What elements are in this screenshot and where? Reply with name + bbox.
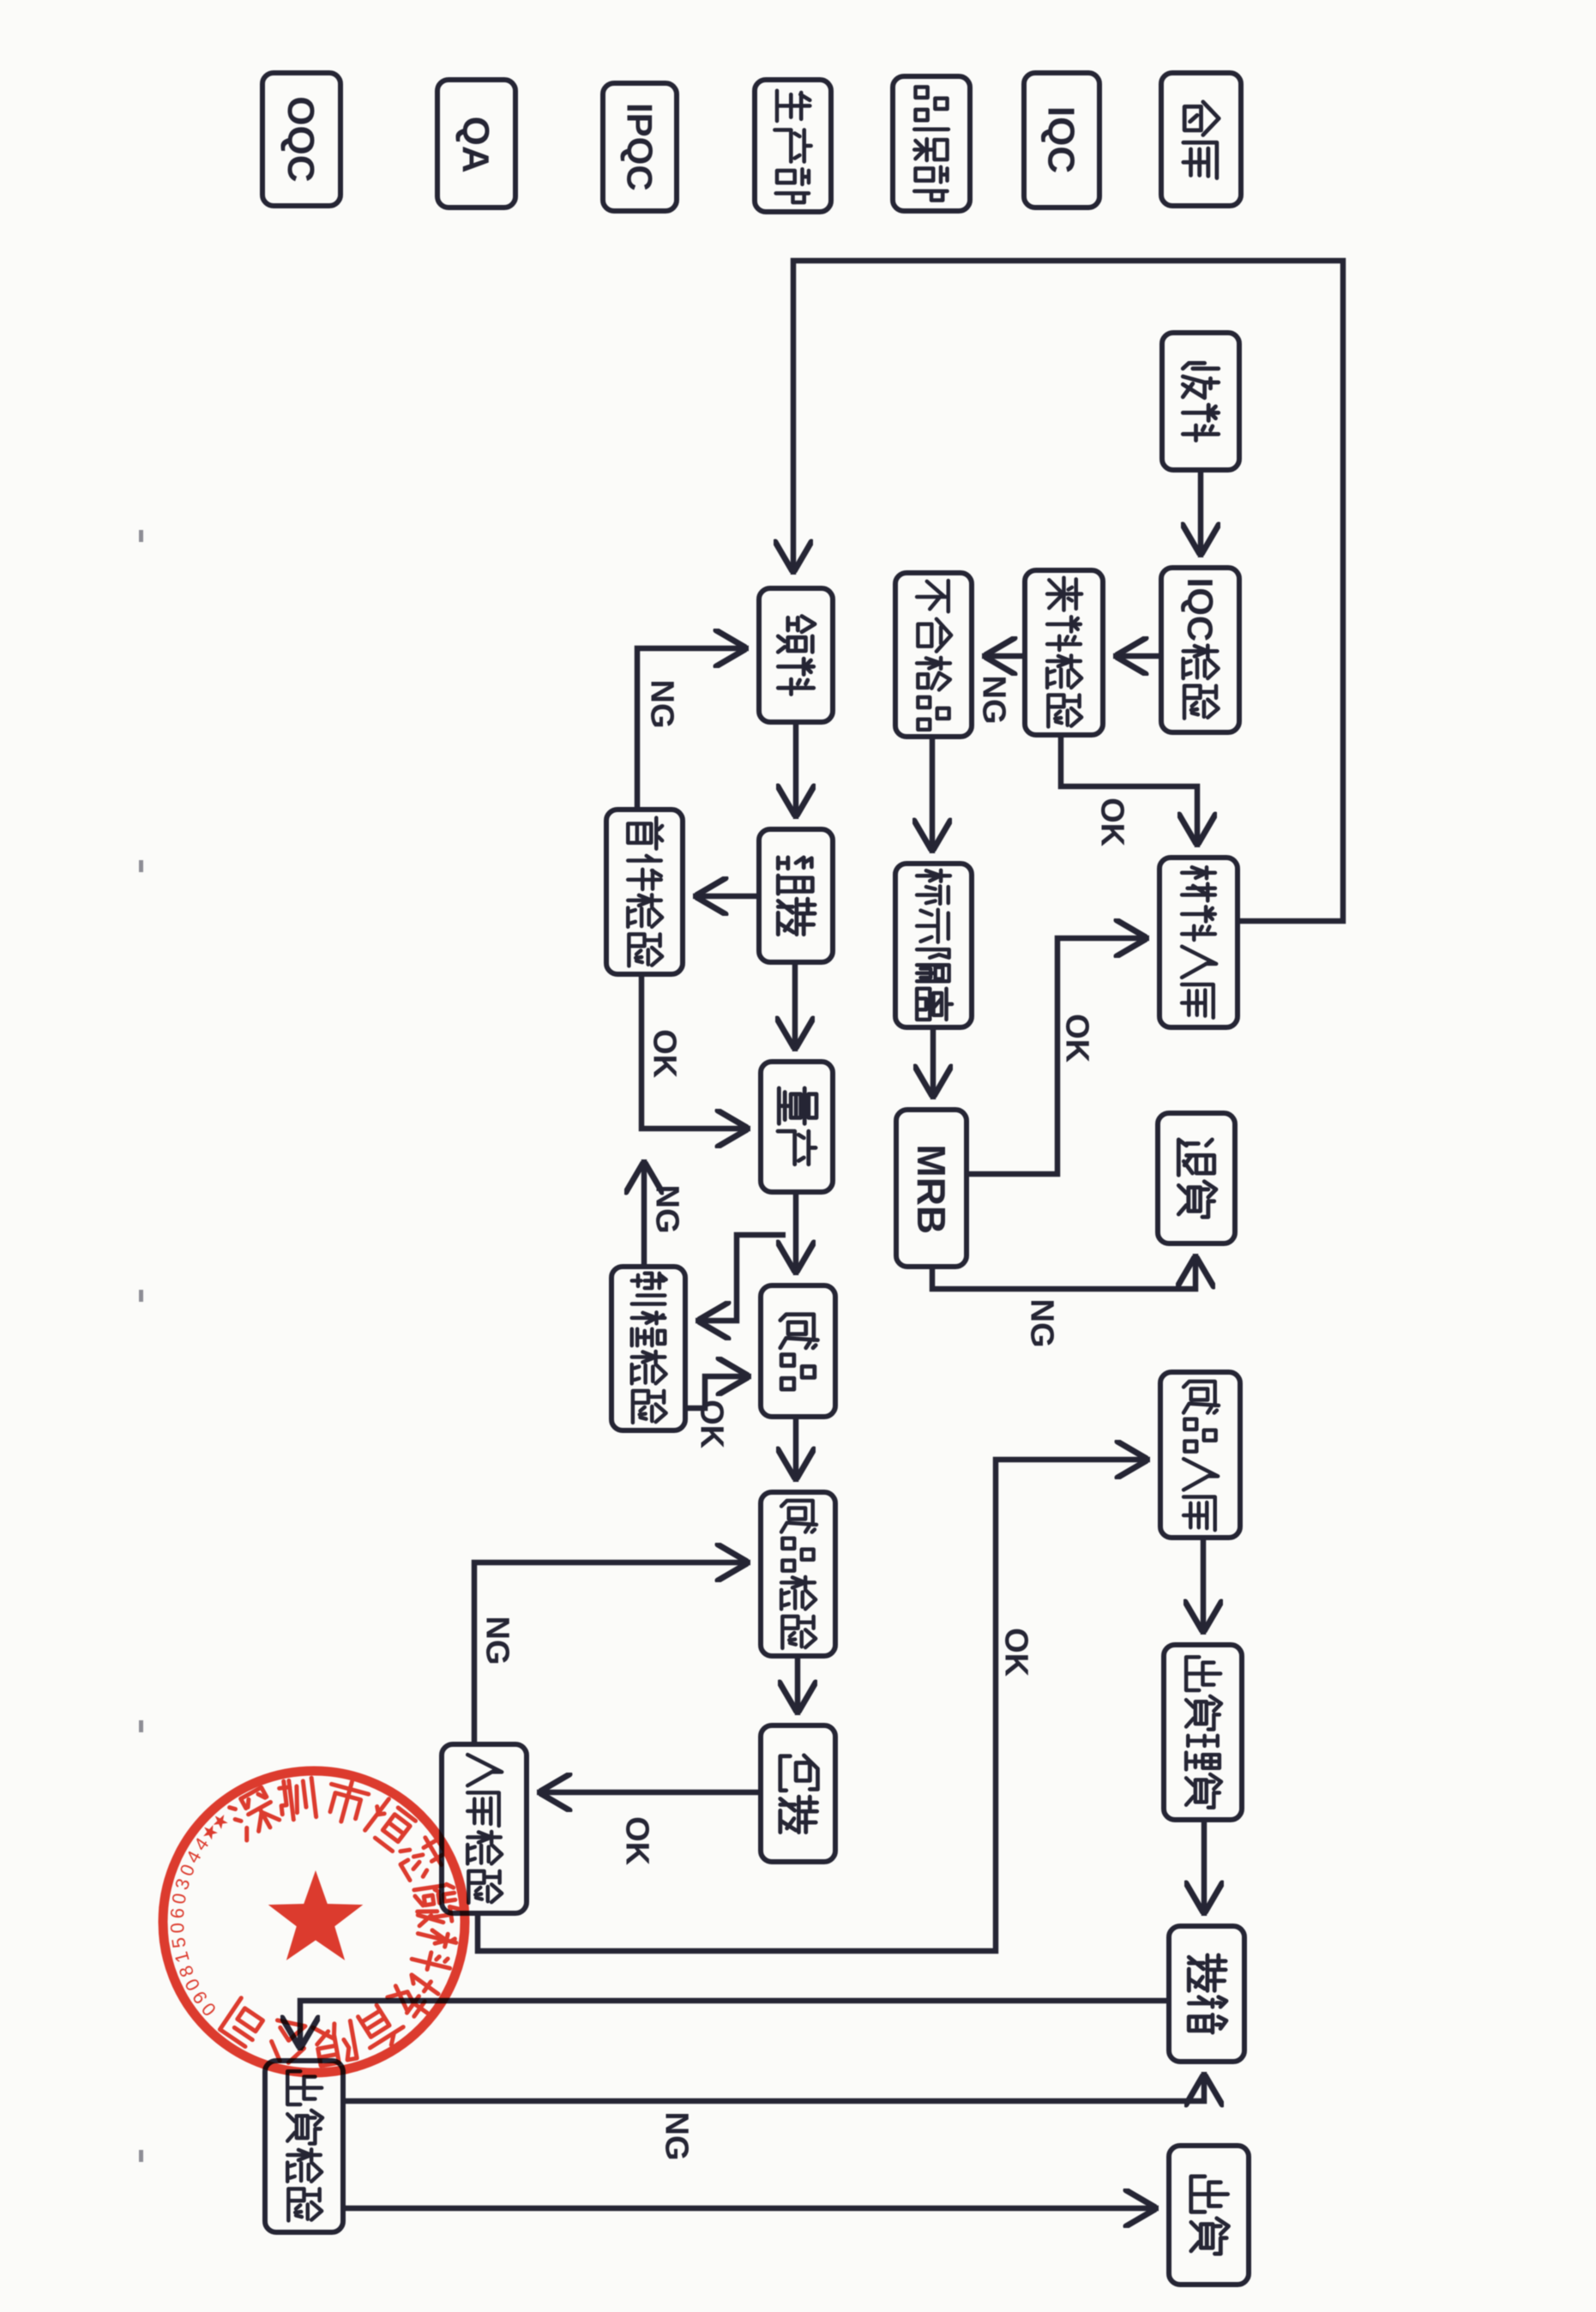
svg-text:OK: OK <box>1059 1014 1095 1063</box>
svg-text:8: 8 <box>174 1962 198 1979</box>
svg-text:6: 6 <box>166 1907 189 1919</box>
svg-text:MRB: MRB <box>909 1144 954 1234</box>
svg-text:OK: OK <box>1094 798 1130 847</box>
svg-text:OQC: OQC <box>280 96 322 182</box>
svg-text:IQC: IQC <box>1180 578 1220 642</box>
svg-text:NG: NG <box>649 1185 685 1234</box>
svg-text:NG: NG <box>1024 1299 1060 1348</box>
svg-text:1: 1 <box>170 1949 193 1965</box>
svg-text:3: 3 <box>171 1876 194 1893</box>
svg-text:QA: QA <box>455 117 497 173</box>
svg-text:0: 0 <box>167 1892 190 1906</box>
svg-text:NG: NG <box>976 676 1012 725</box>
svg-text:IQC: IQC <box>1040 106 1082 173</box>
svg-text:NG: NG <box>479 1617 515 1665</box>
svg-text:5: 5 <box>167 1936 190 1949</box>
svg-text:OK: OK <box>998 1628 1034 1677</box>
svg-text:NG: NG <box>644 680 680 729</box>
svg-text:0: 0 <box>166 1923 189 1934</box>
svg-text:OK: OK <box>694 1400 730 1449</box>
svg-text:NG: NG <box>659 2112 695 2161</box>
svg-text:OK: OK <box>647 1029 683 1079</box>
svg-text:IPQC: IPQC <box>619 103 659 191</box>
svg-text:OK: OK <box>619 1816 655 1866</box>
